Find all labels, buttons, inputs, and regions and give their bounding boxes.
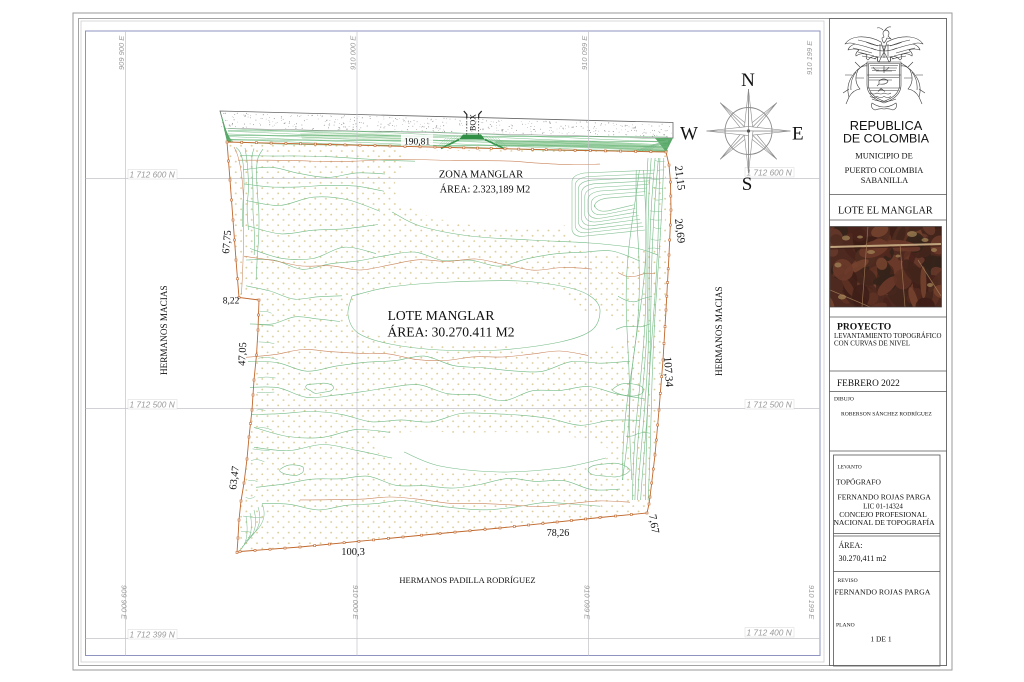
- svg-text:1 DE 1: 1 DE 1: [870, 634, 891, 643]
- svg-text:REVISO: REVISO: [838, 578, 858, 584]
- svg-text:HERMANOS MACIAS: HERMANOS MACIAS: [159, 285, 169, 375]
- svg-text:ROBERSON SÁNCHEZ RODRÍGUEZ: ROBERSON SÁNCHEZ RODRÍGUEZ: [841, 410, 932, 418]
- svg-text:E: E: [792, 124, 804, 145]
- svg-text:LOTE EL MANGLAR: LOTE EL MANGLAR: [838, 206, 933, 217]
- svg-text:MUNICIPIO DE: MUNICIPIO DE: [855, 152, 912, 161]
- svg-text:LEVANTAMIENTO TOPOGRÁFICO: LEVANTAMIENTO TOPOGRÁFICO: [834, 332, 941, 340]
- svg-text:W: W: [680, 124, 698, 145]
- svg-text:LOTE MANGLAR: LOTE MANGLAR: [388, 308, 496, 323]
- svg-text:910 000 E: 910 000 E: [349, 35, 358, 70]
- svg-text:910 099 E: 910 099 E: [580, 35, 589, 70]
- svg-text:100,3: 100,3: [341, 547, 365, 558]
- svg-text:910 000 E: 910 000 E: [351, 585, 360, 620]
- svg-text:DE COLOMBIA: DE COLOMBIA: [843, 132, 930, 146]
- svg-text:1 712 500 N: 1 712 500 N: [747, 400, 792, 410]
- svg-text:HERMANOS PADILLA RODRÍGUEZ: HERMANOS PADILLA RODRÍGUEZ: [399, 575, 535, 585]
- svg-text:FERNANDO ROJAS PARGA: FERNANDO ROJAS PARGA: [838, 493, 932, 502]
- svg-text:67,75: 67,75: [221, 230, 234, 254]
- svg-text:1 712 600 N: 1 712 600 N: [130, 170, 175, 180]
- svg-text:HERMANOS MACIAS: HERMANOS MACIAS: [714, 286, 724, 376]
- svg-text:TOPÓGRAFO: TOPÓGRAFO: [836, 476, 881, 486]
- svg-text:190,81: 190,81: [404, 138, 430, 148]
- svg-text:BOX: BOX: [469, 114, 478, 131]
- svg-text:DIBUJO: DIBUJO: [834, 396, 854, 402]
- svg-text:N: N: [741, 70, 755, 91]
- svg-text:1 712 500 N: 1 712 500 N: [130, 400, 175, 410]
- svg-text:47,05: 47,05: [237, 342, 249, 366]
- svg-text:FERNANDO ROJAS PARGA: FERNANDO ROJAS PARGA: [835, 587, 931, 596]
- svg-text:909 900 E: 909 900 E: [120, 585, 129, 620]
- svg-text:FEBRERO 2022: FEBRERO 2022: [837, 379, 900, 389]
- svg-text:PROYECTO: PROYECTO: [837, 322, 891, 333]
- svg-text:ÁREA:: ÁREA:: [839, 540, 863, 550]
- svg-text:S: S: [742, 174, 753, 195]
- svg-text:ÁREA: 30.270.411 M2: ÁREA: 30.270.411 M2: [387, 324, 514, 340]
- svg-text:ÁREA: 2.323,189 M2: ÁREA: 2.323,189 M2: [440, 184, 531, 196]
- svg-text:NACIONAL DE TOPOGRAFÍA: NACIONAL DE TOPOGRAFÍA: [833, 517, 935, 527]
- svg-text:1 712 400 N: 1 712 400 N: [747, 628, 792, 638]
- svg-text:ZONA MANGLAR: ZONA MANGLAR: [439, 170, 523, 181]
- svg-text:107,34: 107,34: [661, 356, 675, 388]
- svg-text:909 900 E: 909 900 E: [117, 35, 126, 70]
- svg-text:910 099 E: 910 099 E: [583, 585, 592, 620]
- svg-text:CON CURVAS DE NIVEL: CON CURVAS DE NIVEL: [834, 340, 910, 347]
- svg-text:78,26: 78,26: [547, 528, 570, 539]
- svg-text:PUERTO COLOMBIA: PUERTO COLOMBIA: [845, 166, 924, 175]
- svg-text:30.270,411 m2: 30.270,411 m2: [839, 554, 887, 563]
- svg-text:1 712 399 N: 1 712 399 N: [130, 630, 175, 640]
- svg-text:1 712 600 N: 1 712 600 N: [747, 168, 792, 178]
- svg-text:PLANO: PLANO: [836, 622, 855, 628]
- svg-text:SABANILLA: SABANILLA: [861, 176, 908, 185]
- svg-text:8,22: 8,22: [223, 297, 240, 307]
- svg-text:910 199 E: 910 199 E: [807, 585, 816, 620]
- svg-text:910 199 E: 910 199 E: [805, 40, 814, 75]
- svg-text:LEVANTO: LEVANTO: [838, 464, 862, 470]
